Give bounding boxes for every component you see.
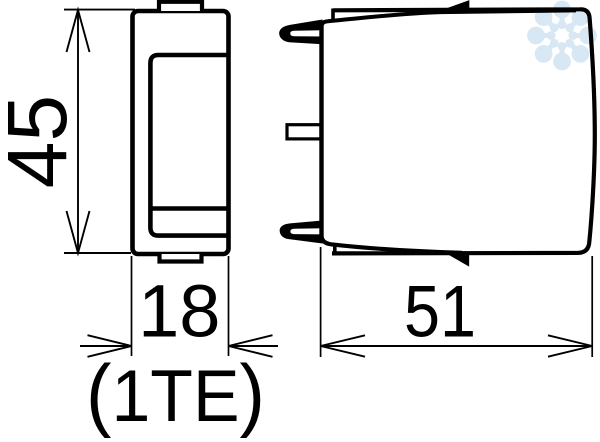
svg-text:18: 18 (138, 270, 220, 353)
svg-text:51: 51 (404, 272, 476, 353)
svg-text:(1TE): (1TE) (86, 349, 265, 439)
svg-text:45: 45 (0, 95, 84, 188)
